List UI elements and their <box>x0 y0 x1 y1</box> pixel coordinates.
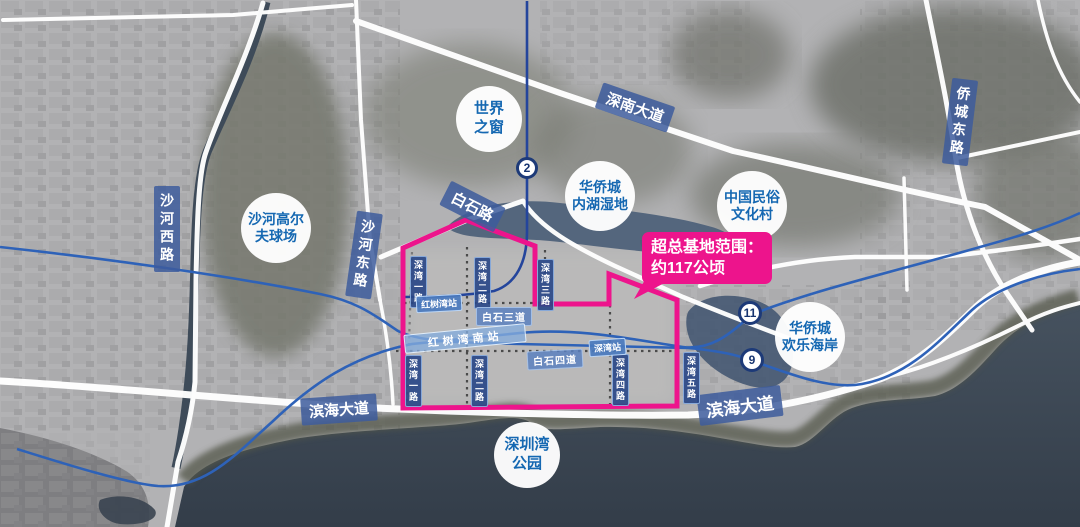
metro-badge-line-9: 9 <box>740 348 764 372</box>
satellite-planning-map: 世界 之窗 华侨城 内湖湿地 中国民俗 文化村 沙河高尔 夫球场 华侨城 欢乐海… <box>0 0 1080 527</box>
road-label-shenwan-4th: 深湾四路 <box>612 354 629 406</box>
road-label-shenwan-2nd-south: 深湾二路 <box>471 355 488 407</box>
poi-label: 世界 <box>474 100 504 119</box>
poi-label: 之窗 <box>474 119 504 138</box>
poi-label: 内湖湿地 <box>572 196 628 214</box>
metro-badge-line-11: 11 <box>738 301 762 325</box>
road-label-shenwan-1st-south: 深湾一路 <box>405 355 422 407</box>
poi-label: 华侨城 <box>789 320 831 338</box>
poi-oct-happy-coast: 华侨城 欢乐海岸 <box>775 302 845 372</box>
poi-oct-inner-lake-wetland: 华侨城 内湖湿地 <box>565 161 635 231</box>
north-greenery <box>670 10 790 100</box>
metro-badge-line-2: 2 <box>516 157 538 179</box>
callout-line-1: 超总基地范围： <box>651 237 763 258</box>
road-label-shenwan-2nd-north: 深湾二路 <box>474 257 491 309</box>
poi-label: 夫球场 <box>255 228 297 246</box>
poi-label: 欢乐海岸 <box>782 337 838 355</box>
poi-label: 华侨城 <box>579 179 621 197</box>
road-label-baishi-4th-street: 白石四道 <box>527 349 584 371</box>
poi-china-folk-culture-village: 中国民俗 文化村 <box>717 171 787 241</box>
poi-shahe-golf-course: 沙河高尔 夫球场 <box>241 193 311 263</box>
road-label-shenwan-5th: 深湾五路 <box>683 352 700 404</box>
poi-label: 深圳湾 <box>504 436 549 455</box>
road-label-binhai-avenue-west: 滨海大道 <box>300 393 378 425</box>
poi-shenzhen-bay-park: 深圳湾 公园 <box>494 422 560 488</box>
station-label-hongshuwan: 红树湾站 <box>416 294 463 313</box>
station-label-shenwan: 深湾站 <box>588 338 626 358</box>
poi-world-window: 世界 之窗 <box>456 86 522 152</box>
site-area-callout: 超总基地范围： 约117公顷 <box>642 232 772 284</box>
callout-line-2: 约117公顷 <box>651 258 763 279</box>
poi-label: 中国民俗 <box>724 189 780 207</box>
poi-label: 沙河高尔 <box>248 211 304 229</box>
poi-label: 公园 <box>512 455 542 474</box>
road-label-shahe-west-road: 沙河西路 <box>154 186 180 272</box>
road-label-shenwan-3rd: 深湾三路 <box>537 259 554 311</box>
poi-label: 文化村 <box>731 206 773 224</box>
